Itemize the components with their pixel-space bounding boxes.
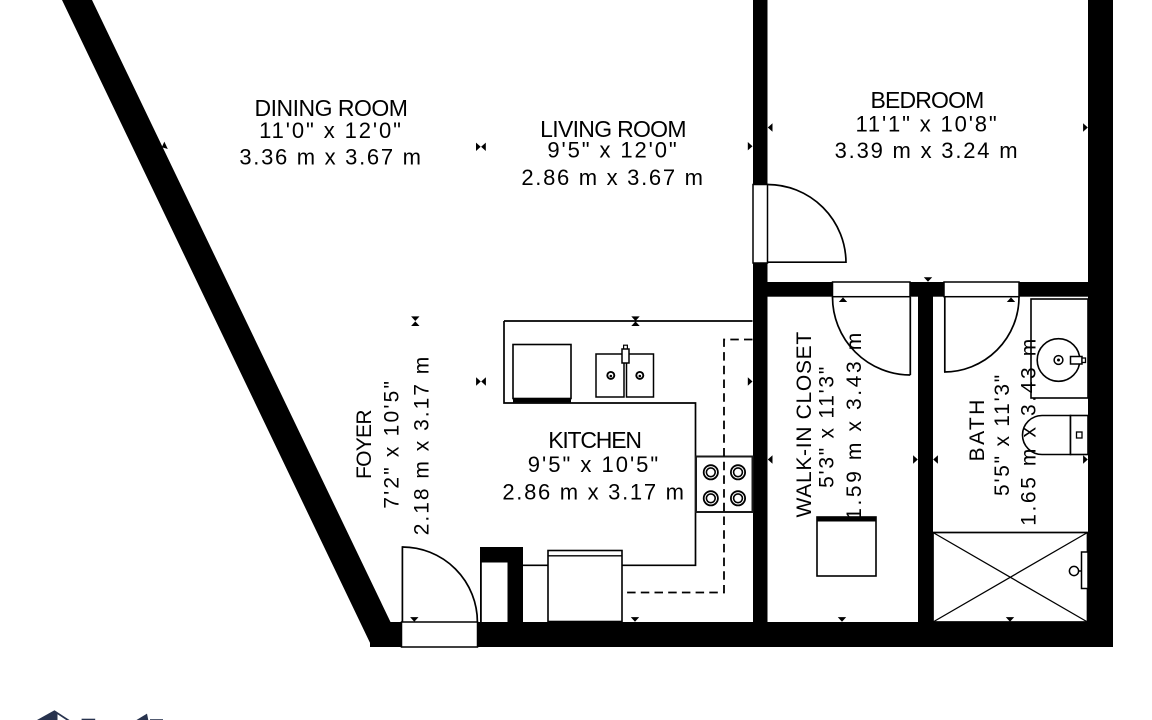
svg-text:3.39 m x 3.24 m: 3.39 m x 3.24 m: [835, 138, 1020, 163]
svg-text:1.65 m x 3.43 m: 1.65 m x 3.43 m: [1018, 336, 1041, 526]
svg-text:BATH: BATH: [966, 397, 989, 461]
svg-text:9'5" x 10'5": 9'5" x 10'5": [528, 452, 660, 477]
svg-text:11'1" x 10'8": 11'1" x 10'8": [855, 111, 998, 136]
svg-text:7'2" x 10'5": 7'2" x 10'5": [381, 379, 404, 509]
svg-text:11'0" x 12'0": 11'0" x 12'0": [259, 118, 403, 143]
svg-text:3.36 m x 3.67 m: 3.36 m x 3.67 m: [239, 145, 422, 170]
svg-text:DINING ROOM: DINING ROOM: [255, 95, 408, 121]
svg-text:5'3" x 11'3": 5'3" x 11'3": [815, 365, 838, 488]
svg-text:2.18 m x 3.17 m: 2.18 m x 3.17 m: [410, 355, 433, 536]
svg-text:KITCHEN: KITCHEN: [548, 427, 641, 453]
svg-text:BEDROOM: BEDROOM: [871, 87, 984, 113]
svg-text:2.86 m x 3.17 m: 2.86 m x 3.17 m: [502, 480, 685, 505]
svg-text:5'5" x 11'3": 5'5" x 11'3": [991, 373, 1014, 496]
svg-text:9'5" x 12'0": 9'5" x 12'0": [547, 138, 678, 163]
svg-text:FOYER: FOYER: [353, 410, 376, 479]
svg-text:WALK-IN CLOSET: WALK-IN CLOSET: [793, 331, 816, 517]
svg-text:1.59 m x 3.43 m: 1.59 m x 3.43 m: [843, 330, 866, 520]
svg-text:2.86 m x 3.67 m: 2.86 m x 3.67 m: [521, 165, 704, 190]
